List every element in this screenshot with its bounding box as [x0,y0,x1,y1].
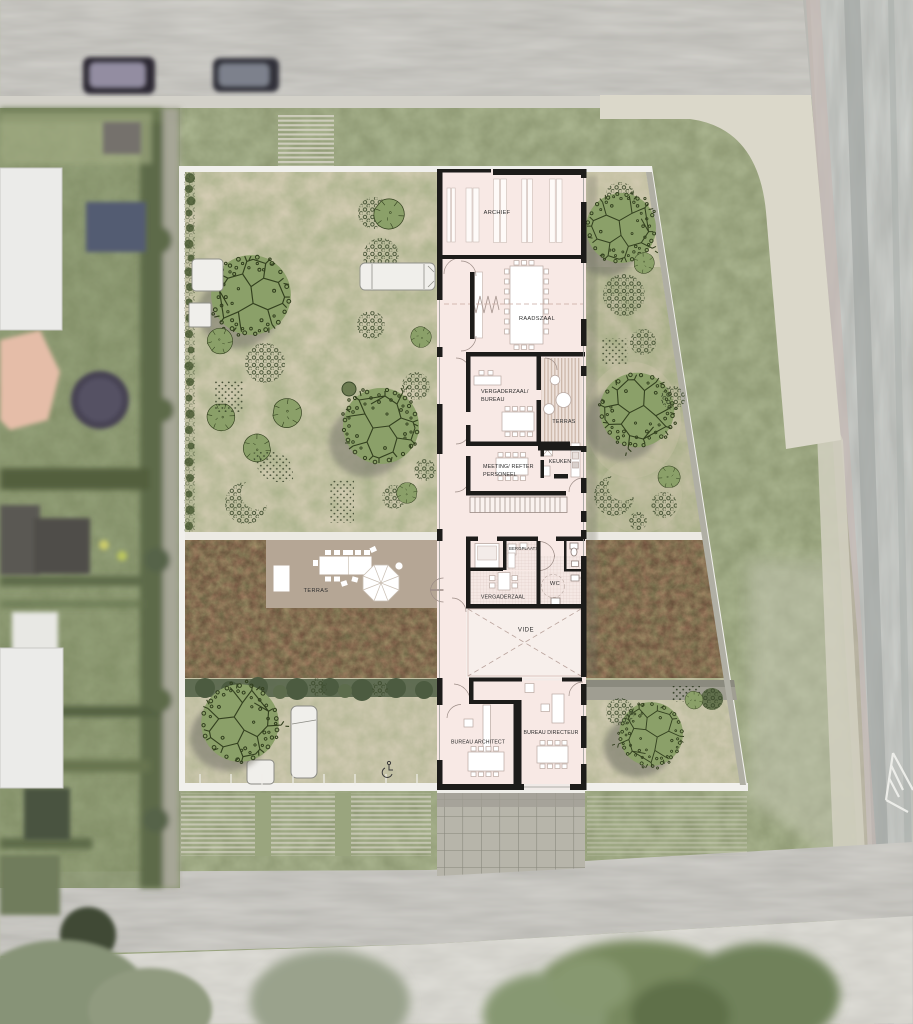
svg-text:BERGPLAATS: BERGPLAATS [509,546,538,551]
svg-text:VERGADERZAAL/: VERGADERZAAL/ [481,389,529,395]
svg-text:WC: WC [550,581,560,587]
svg-text:TERRAS: TERRAS [552,419,575,425]
svg-text:PERSONEEL: PERSONEEL [483,472,517,478]
svg-text:BUREAU DIRECTEUR: BUREAU DIRECTEUR [524,730,579,736]
svg-text:TERRAS: TERRAS [304,588,329,594]
svg-text:VERGADERZAAL: VERGADERZAAL [481,595,525,601]
svg-text:RAADSZAAL: RAADSZAAL [519,316,555,322]
svg-text:BUREAU ARCHITECT: BUREAU ARCHITECT [451,740,506,746]
svg-text:ARCHIEF: ARCHIEF [484,210,511,216]
svg-text:MEETING/ REFTER: MEETING/ REFTER [483,464,534,470]
svg-text:VIDE: VIDE [518,627,534,634]
svg-text:KEUKEN: KEUKEN [549,459,571,465]
svg-text:BUREAU: BUREAU [481,397,505,403]
